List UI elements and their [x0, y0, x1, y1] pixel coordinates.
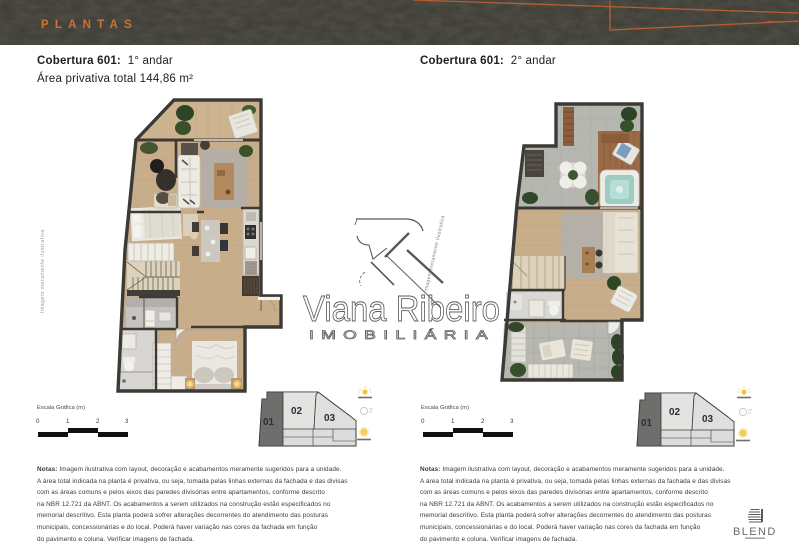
svg-text:03: 03: [324, 413, 336, 424]
svg-text:IMOBILIÁRIA: IMOBILIÁRIA: [309, 327, 495, 342]
svg-text:2: 2: [481, 418, 485, 425]
svg-text:3: 3: [510, 418, 514, 425]
svg-text:0: 0: [421, 418, 425, 425]
svg-text:02: 02: [291, 406, 303, 417]
svg-text:01: 01: [263, 417, 275, 428]
svg-text:3: 3: [125, 418, 129, 425]
svg-text:Escala Gráfica (m): Escala Gráfica (m): [37, 405, 85, 411]
svg-text:1: 1: [451, 418, 455, 425]
svg-text:01: 01: [641, 418, 653, 429]
svg-text:2: 2: [96, 418, 100, 425]
svg-text:Escala Gráfica (m): Escala Gráfica (m): [421, 405, 469, 411]
svg-text:02: 02: [669, 407, 681, 418]
svg-text:0: 0: [36, 418, 40, 425]
svg-text:Imagem meramente ilustrativa: Imagem meramente ilustrativa: [423, 215, 446, 293]
svg-text:Viana Ribeiro: Viana Ribeiro: [303, 288, 500, 329]
svg-text:03: 03: [702, 414, 714, 425]
svg-text:1: 1: [66, 418, 70, 425]
